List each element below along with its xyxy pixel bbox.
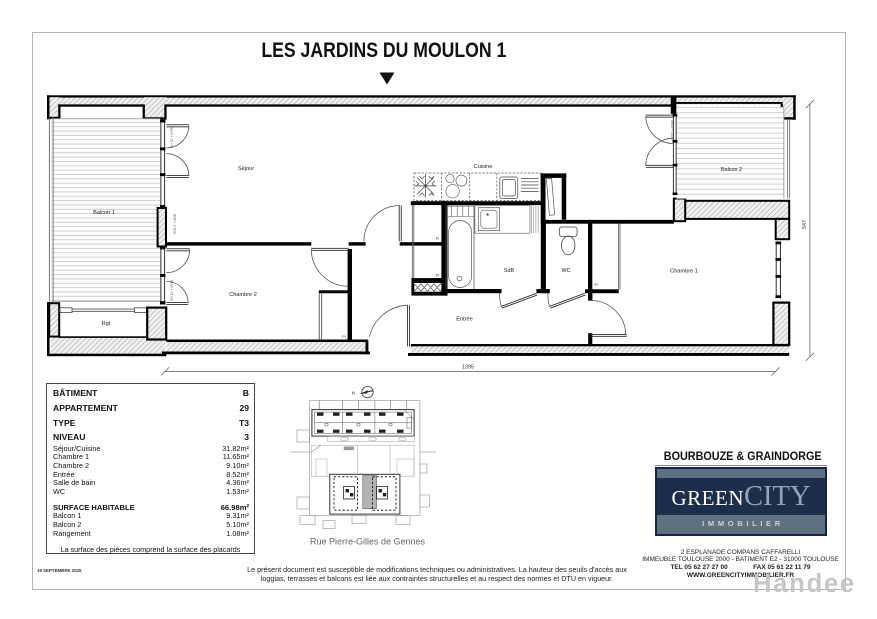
svg-text:ASP + 2.70m: ASP + 2.70m (173, 214, 177, 234)
svg-text:Balcon 1: Balcon 1 (93, 210, 115, 216)
svg-text:Cuisine: Cuisine (474, 164, 493, 170)
svg-text:Chambre 1: Chambre 1 (670, 269, 698, 275)
svg-text:Seuil + 15 cm: Seuil + 15 cm (169, 127, 173, 148)
svg-text:Seuil + 15 cm: Seuil + 15 cm (169, 280, 173, 301)
svg-text:Rgt: Rgt (102, 321, 111, 327)
svg-text:Balcon 2: Balcon 2 (721, 167, 742, 173)
svg-text:Chambre 2: Chambre 2 (229, 292, 257, 298)
svg-text:SdB: SdB (504, 268, 515, 274)
svg-text:Séjour: Séjour (238, 166, 254, 172)
svg-text:Seuil + 15cm: Seuil + 15cm (670, 120, 674, 140)
svg-text:Rue Pierre-Gilles de Gennes: Rue Pierre-Gilles de Gennes (310, 536, 426, 546)
svg-text:Pl: Pl (595, 283, 598, 287)
svg-text:WC: WC (562, 268, 571, 274)
svg-text:Pl: Pl (342, 335, 345, 339)
svg-text:1395: 1395 (462, 365, 474, 371)
svg-text:N: N (352, 391, 355, 396)
svg-text:Pl: Pl (436, 274, 439, 278)
svg-text:547: 547 (802, 220, 808, 229)
svg-text:Entrée: Entrée (456, 317, 472, 323)
svg-text:Pl: Pl (436, 237, 439, 241)
